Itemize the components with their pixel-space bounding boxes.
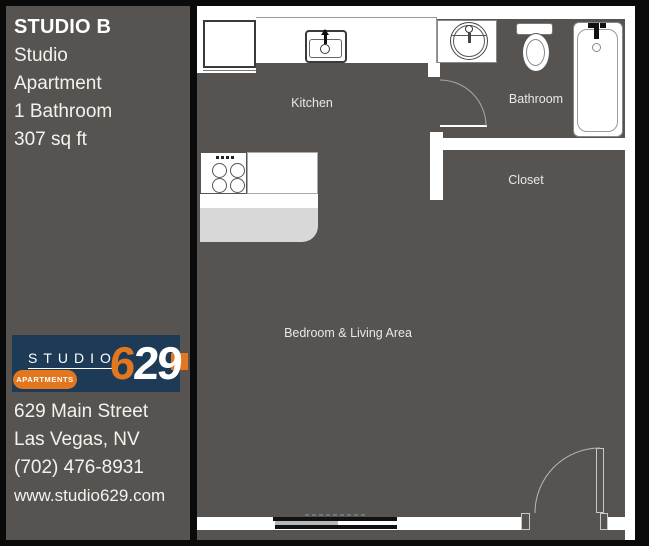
address-city: Las Vegas, NV <box>14 429 140 451</box>
entry-door-stop-right <box>600 513 608 530</box>
unit-title: STUDIO B <box>14 16 111 39</box>
right-outer-wall <box>635 6 643 540</box>
closet-top-wall <box>443 138 625 150</box>
stove-burner <box>212 163 227 178</box>
stove-burner <box>230 163 245 178</box>
address-phone: (702) 476-8931 <box>14 457 144 479</box>
refrigerator-icon <box>203 20 256 68</box>
entry-door-leaf <box>596 448 604 513</box>
tub-faucet-right <box>600 23 606 28</box>
sink-faucet-stem <box>324 34 327 44</box>
stove-burner <box>212 178 227 193</box>
room-label-closet: Closet <box>508 173 543 187</box>
address-website: www.studio629.com <box>14 486 165 506</box>
sink-drain <box>320 44 330 54</box>
tub-faucet-spout <box>594 23 599 39</box>
stove-knob <box>226 156 229 159</box>
bathtub-icon <box>573 22 623 137</box>
stove-icon <box>200 152 247 194</box>
island-counter-top <box>200 194 318 208</box>
logo-629-number: 629 <box>108 340 182 386</box>
stove-knob <box>221 156 224 159</box>
left-wall <box>190 6 197 540</box>
room-label-bathroom: Bathroom <box>509 92 563 106</box>
stove-knob <box>231 156 234 159</box>
entry-door-arc <box>535 448 600 513</box>
logo-apartments-badge: APARTMENTS <box>13 370 77 389</box>
logo-underline <box>28 368 114 369</box>
logo-studio-text: STUDIO <box>28 350 117 366</box>
sliding-window-rail-bottom <box>275 525 397 529</box>
stove-burner <box>230 178 245 193</box>
logo-digits-29: 29 <box>132 337 183 389</box>
bottom-wall-right-segment <box>608 517 625 530</box>
room-label-bedroom: Bedroom & Living Area <box>284 326 412 340</box>
floor-plan: Kitchen Bathroom Closet Bedroom & Living… <box>190 6 643 540</box>
kitchen-sink-icon <box>305 30 347 63</box>
room-label-kitchen: Kitchen <box>291 96 333 110</box>
sidebar: STUDIO B Studio Apartment 1 Bathroom 307… <box>6 6 190 540</box>
kitchen-island <box>200 208 318 242</box>
counter-beside-stove <box>247 152 318 194</box>
studio629-logo: STUDIO APARTMENTS 629 <box>12 335 180 392</box>
unit-detail-sqft: 307 sq ft <box>14 129 87 151</box>
vanity-faucet-knob <box>465 25 473 33</box>
bathroom-door-arc <box>440 80 486 126</box>
fridge-counter-line <box>203 70 256 71</box>
address-street: 629 Main Street <box>14 401 148 423</box>
closet-left-wall <box>430 132 443 200</box>
vanity <box>437 20 497 63</box>
unit-detail-bathrooms: 1 Bathroom <box>14 101 112 123</box>
entry-door-stop-left <box>521 513 530 530</box>
unit-detail-type1: Studio <box>14 45 68 67</box>
unit-detail-type2: Apartment <box>14 73 102 95</box>
toilet-bowl-inner <box>526 39 545 66</box>
bathroom-door-leaf <box>440 125 487 127</box>
bathroom-wall-stub <box>428 63 440 77</box>
toilet-bowl <box>522 33 550 72</box>
right-wall <box>625 6 635 540</box>
vanity-faucet-stem <box>468 33 471 43</box>
stove-knob <box>216 156 219 159</box>
flyer: STUDIO B Studio Apartment 1 Bathroom 307… <box>0 0 649 546</box>
tub-drain <box>592 43 601 52</box>
